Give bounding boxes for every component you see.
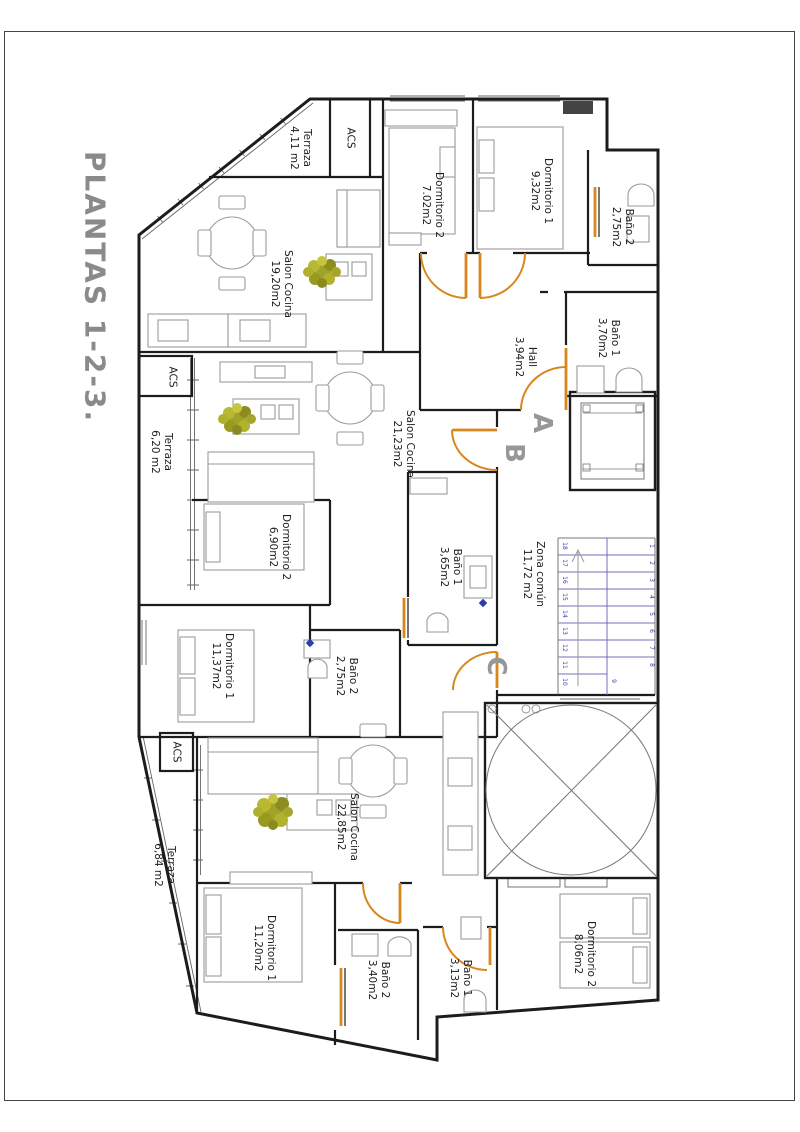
room-label-c-salon: Salon Cocina 22,85m2 [334, 793, 360, 861]
room-label-a-dormitorio2: Dormitorio 2 7.02m2 [419, 172, 445, 238]
room-area: 19,20m2 [268, 261, 281, 308]
svg-text:15: 15 [561, 593, 568, 601]
room-name: Dormitorio 1 [541, 158, 554, 224]
room-area: 9,32m2 [528, 171, 541, 211]
room-label-c-dormitorio2: Dormitorio 2 8,06m2 [571, 921, 597, 987]
room-area: 3,13m2 [447, 958, 460, 998]
apartment-letter-a: A [527, 413, 557, 433]
floor-plan-drawing: 18 17 16 15 14 13 12 11 10 1 2 3 4 5 6 7… [0, 0, 800, 1132]
room-label-b-bano1: Baño 1 3,65m2 [437, 547, 463, 587]
room-name: Dormitorio 2 [279, 514, 292, 580]
svg-text:5: 5 [648, 612, 655, 616]
svg-text:8: 8 [648, 663, 655, 667]
room-area: 3,94m2 [512, 337, 525, 377]
room-label-c-acs: ACS [169, 742, 182, 763]
room-label-a-bano2: Baño 2 2,75m2 [609, 207, 635, 247]
room-name: ACS [169, 742, 182, 763]
room-label-a-terraza: Terraza 4,11 m2 [287, 126, 313, 170]
room-name: Salon Cocina [403, 410, 416, 478]
floor-plan-page: 18 17 16 15 14 13 12 11 10 1 2 3 4 5 6 7… [0, 0, 800, 1132]
room-name: Terraza [164, 846, 177, 884]
room-name: Salon Cocina [347, 793, 360, 861]
room-area: 8,06m2 [571, 934, 584, 974]
svg-text:14: 14 [561, 610, 568, 618]
svg-text:9: 9 [610, 679, 617, 683]
svg-text:13: 13 [561, 627, 568, 635]
svg-text:7: 7 [648, 646, 655, 650]
room-label-zona-comun: Zona común 11,72 m2 [520, 541, 546, 607]
room-name: Terraza [161, 433, 174, 471]
room-label-b-dormitorio1: Dormitorio 1 11,37m2 [209, 633, 235, 699]
room-name: Salon Cocina [281, 250, 294, 318]
room-area: 3,65m2 [437, 547, 450, 587]
svg-text:4: 4 [648, 595, 655, 599]
room-label-c-bano2: Baño 2 3,40m2 [365, 960, 391, 1000]
svg-text:1: 1 [648, 544, 655, 548]
room-name: ACS [165, 367, 178, 388]
svg-text:12: 12 [561, 644, 568, 652]
room-area: 7.02m2 [419, 185, 432, 225]
svg-text:3: 3 [648, 578, 655, 582]
room-label-c-dormitorio1: Dormitorio 1 11,20m2 [251, 915, 277, 981]
room-area: 22,85m2 [334, 804, 347, 851]
room-name: Dormitorio 1 [264, 915, 277, 981]
svg-text:10: 10 [561, 678, 568, 686]
room-area: 21,23m2 [390, 421, 403, 468]
room-name: Baño 1 [460, 960, 473, 997]
room-name: Dormitorio 2 [584, 921, 597, 987]
apartment-letter-b: B [499, 443, 529, 463]
room-name: Baño 2 [622, 209, 635, 246]
page-title: PLANTAS 1-2-3. [79, 151, 112, 423]
room-label-a-salon: Salon Cocina 19,20m2 [268, 250, 294, 318]
stairs: 18 17 16 15 14 13 12 11 10 1 2 3 4 5 6 7… [558, 538, 655, 695]
svg-text:17: 17 [561, 559, 568, 567]
room-label-b-terraza: Terraza 6,20 m2 [148, 430, 174, 474]
svg-text:2: 2 [648, 561, 655, 565]
room-name: ACS [343, 128, 356, 149]
room-name: Baño 2 [378, 962, 391, 999]
room-name: Zona común [533, 541, 546, 607]
room-name: Baño 2 [346, 658, 359, 695]
drain-markers [306, 599, 487, 647]
room-area: 3,70m2 [595, 318, 608, 358]
room-label-b-acs: ACS [165, 367, 178, 388]
room-name: Hall [525, 347, 538, 367]
room-label-a-dormitorio1: Dormitorio 1 9,32m2 [528, 158, 554, 224]
patio-lightwell [485, 703, 658, 878]
room-label-c-terraza: Terraza 6,84 m2 [151, 843, 177, 887]
svg-text:11: 11 [561, 661, 568, 669]
room-label-a-bano1: Baño 1 3,70m2 [595, 318, 621, 358]
room-area: 6,90m2 [266, 527, 279, 567]
room-area: 3,40m2 [365, 960, 378, 1000]
room-area: 11,37m2 [209, 643, 222, 690]
svg-text:16: 16 [561, 576, 568, 584]
room-label-b-salon: Salon Cocina 21,23m2 [390, 410, 416, 478]
room-name: Terraza [300, 129, 313, 167]
room-area: 2,75m2 [333, 656, 346, 696]
elevator [570, 392, 655, 490]
room-name: Dormitorio 1 [222, 633, 235, 699]
room-name: Dormitorio 2 [432, 172, 445, 238]
svg-text:6: 6 [648, 629, 655, 633]
room-area: 4,11 m2 [287, 126, 300, 170]
room-label-a-hall: Hall 3,94m2 [512, 337, 538, 377]
apartment-letter-c: C [481, 656, 511, 675]
room-name: Baño 1 [608, 320, 621, 357]
room-label-b-bano2: Baño 2 2,75m2 [333, 656, 359, 696]
room-label-b-dormitorio2: Dormitorio 2 6,90m2 [266, 514, 292, 580]
room-area: 11,72 m2 [520, 549, 533, 599]
room-area: 6,20 m2 [148, 430, 161, 474]
room-name: Baño 1 [450, 549, 463, 586]
room-area: 2,75m2 [609, 207, 622, 247]
svg-text:18: 18 [561, 542, 568, 550]
room-label-a-acs: ACS [343, 128, 356, 149]
stair-tread-numbers: 18 17 16 15 14 13 12 11 10 1 2 3 4 5 6 7… [561, 542, 655, 686]
room-area: 11,20m2 [251, 925, 264, 972]
room-area: 6,84 m2 [151, 843, 164, 887]
room-label-c-bano1: Baño 1 3,13m2 [447, 958, 473, 998]
